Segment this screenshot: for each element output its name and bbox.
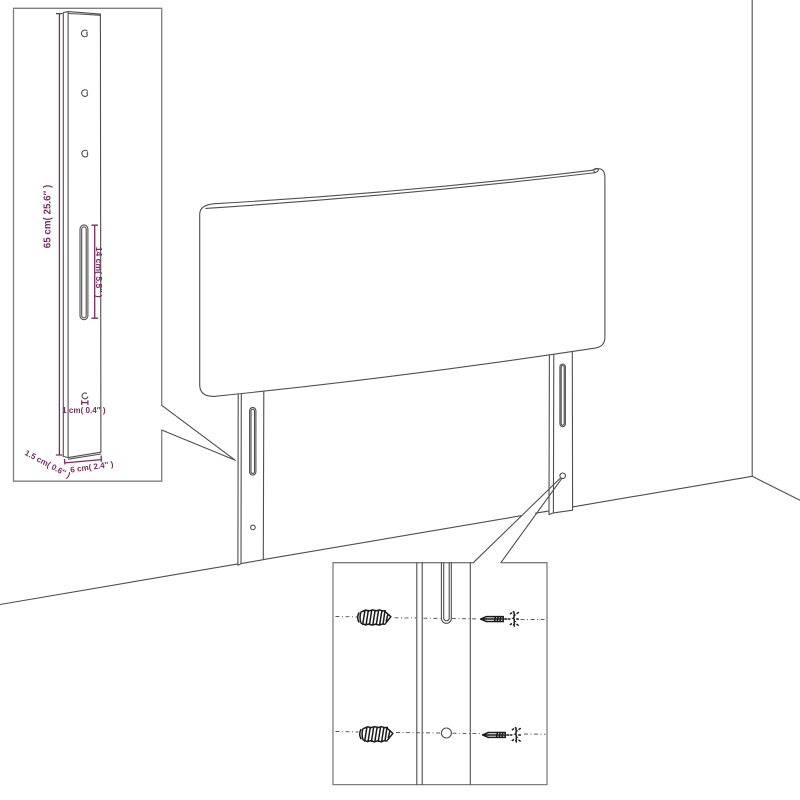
svg-text:65 cm( 25.6″ ): 65 cm( 25.6″ ) [42,185,53,249]
svg-text:14 cm( 5.5″ ): 14 cm( 5.5″ ) [94,247,104,298]
svg-text:1 cm( 0.4″ ): 1 cm( 0.4″ ) [62,406,106,415]
